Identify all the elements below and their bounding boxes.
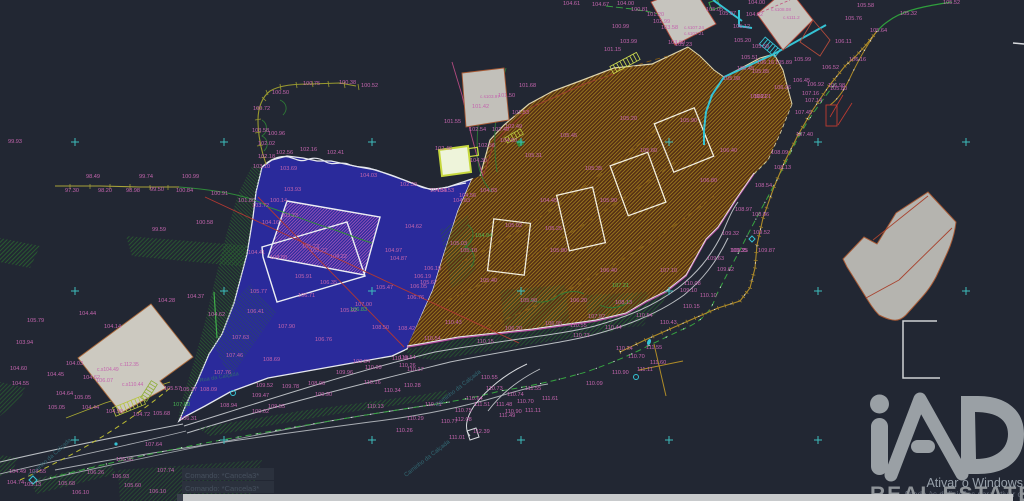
svg-text:105.05: 105.05	[74, 395, 91, 401]
svg-text:104.22: 104.22	[330, 254, 347, 260]
svg-text:106.16: 106.16	[757, 60, 774, 66]
svg-text:104.49: 104.49	[9, 469, 26, 475]
svg-text:105.79: 105.79	[27, 318, 44, 324]
svg-text:108.94: 108.94	[220, 403, 237, 409]
svg-text:111.51: 111.51	[474, 402, 490, 408]
svg-text:107.10: 107.10	[660, 268, 677, 274]
svg-text:107.64: 107.64	[145, 442, 162, 448]
svg-text:106.95: 106.95	[545, 321, 562, 327]
svg-text:105.31: 105.31	[525, 153, 542, 159]
svg-text:105.52: 105.52	[943, 0, 960, 6]
svg-text:104.45: 104.45	[47, 372, 64, 378]
svg-text:104.94: 104.94	[475, 233, 492, 239]
svg-text:112.08: 112.08	[455, 417, 472, 423]
svg-text:104.00: 104.00	[748, 0, 765, 6]
svg-text:105.90: 105.90	[680, 118, 697, 124]
svg-text:99.74: 99.74	[139, 174, 153, 180]
svg-text:108.13: 108.13	[615, 300, 632, 306]
svg-text:105.58: 105.58	[857, 3, 874, 9]
svg-text:110.74: 110.74	[616, 346, 633, 352]
svg-text:110.90: 110.90	[612, 370, 629, 376]
svg-text:97.30: 97.30	[65, 188, 79, 194]
svg-text:111.48: 111.48	[496, 402, 512, 408]
svg-text:110.29: 110.29	[407, 416, 424, 422]
svg-text:c.112.35: c.112.35	[120, 362, 139, 368]
svg-text:106.92: 106.92	[807, 82, 824, 88]
svg-text:105.85: 105.85	[752, 69, 769, 75]
svg-text:c.s107.21: c.s107.21	[684, 31, 704, 36]
svg-text:109.47: 109.47	[252, 393, 269, 399]
svg-text:106.35: 106.35	[320, 280, 337, 286]
svg-text:105.59: 105.59	[752, 44, 769, 50]
svg-text:105.90: 105.90	[520, 298, 537, 304]
svg-text:104.58: 104.58	[106, 409, 123, 415]
svg-text:106.26: 106.26	[87, 470, 104, 476]
svg-text:105.03: 105.03	[450, 241, 467, 247]
svg-text:110.55: 110.55	[570, 323, 587, 329]
svg-text:110.43: 110.43	[660, 320, 677, 326]
svg-text:108.42: 108.42	[398, 326, 415, 332]
svg-text:104.41: 104.41	[248, 250, 265, 256]
svg-text:104.28: 104.28	[158, 298, 175, 304]
svg-text:104.67: 104.67	[592, 2, 609, 8]
svg-text:101.50: 101.50	[498, 93, 515, 99]
svg-text:105.76: 105.76	[845, 16, 862, 22]
svg-text:109.52: 109.52	[753, 230, 770, 236]
svg-text:105.13: 105.13	[24, 482, 41, 488]
svg-text:c.s111.2: c.s111.2	[783, 15, 800, 20]
svg-text:c.s108.08: c.s108.08	[771, 7, 791, 12]
svg-text:108.54: 108.54	[755, 183, 772, 189]
svg-text:104.45: 104.45	[540, 198, 557, 204]
svg-text:104.03: 104.03	[360, 173, 377, 179]
svg-text:106.20: 106.20	[505, 326, 522, 332]
svg-text:105.23: 105.23	[675, 42, 692, 48]
svg-text:106.19: 106.19	[414, 274, 431, 280]
svg-text:110.73: 110.73	[573, 333, 590, 339]
svg-text:106.93: 106.93	[112, 474, 129, 480]
svg-text:103.58: 103.58	[661, 25, 678, 31]
svg-text:110.15: 110.15	[683, 304, 700, 310]
svg-text:108.96: 108.96	[308, 381, 325, 387]
svg-text:106.76: 106.76	[315, 337, 332, 343]
svg-text:100.91: 100.91	[211, 191, 228, 197]
svg-text:107.60: 107.60	[173, 402, 190, 408]
svg-text:110.70: 110.70	[517, 399, 534, 405]
svg-text:107.21: 107.21	[612, 283, 629, 289]
svg-text:108.09: 108.09	[771, 150, 788, 156]
svg-text:105.40: 105.40	[480, 278, 497, 284]
svg-text:104.00: 104.00	[617, 1, 634, 7]
svg-text:109.63: 109.63	[707, 256, 724, 262]
svg-text:110.34: 110.34	[384, 388, 401, 394]
svg-text:101.55: 101.55	[444, 119, 461, 125]
svg-text:100.75: 100.75	[303, 81, 320, 87]
svg-text:98.20: 98.20	[98, 188, 112, 194]
svg-text:107.74: 107.74	[157, 468, 174, 474]
svg-text:103.94: 103.94	[16, 340, 33, 346]
svg-text:110.16: 110.16	[364, 380, 381, 386]
svg-text:109.55: 109.55	[268, 404, 285, 410]
svg-text:107.14: 107.14	[805, 98, 822, 104]
svg-text:111.55: 111.55	[525, 386, 541, 392]
svg-text:111.60: 111.60	[650, 360, 666, 366]
svg-text:109.10: 109.10	[680, 288, 697, 294]
svg-text:110.73: 110.73	[486, 386, 503, 392]
svg-text:105.37: 105.37	[180, 387, 197, 393]
svg-text:107.16: 107.16	[802, 91, 819, 97]
svg-text:100.38: 100.38	[339, 80, 356, 86]
svg-text:106.31: 106.31	[180, 416, 197, 422]
svg-text:c.s104.49: c.s104.49	[97, 367, 119, 373]
svg-text:104.72: 104.72	[133, 412, 150, 418]
svg-text:105.68: 105.68	[153, 411, 170, 417]
svg-text:110.54: 110.54	[636, 313, 653, 319]
svg-text:105.25: 105.25	[545, 226, 562, 232]
svg-text:102.41: 102.41	[327, 150, 344, 156]
svg-text:103.72: 103.72	[252, 203, 269, 209]
svg-text:104.80: 104.80	[270, 255, 287, 261]
svg-text:104.56: 104.56	[459, 193, 476, 199]
svg-text:106.10: 106.10	[72, 490, 89, 496]
svg-text:111.11: 111.11	[637, 367, 653, 373]
svg-text:110.09: 110.09	[586, 381, 603, 387]
svg-text:105.12: 105.12	[733, 24, 750, 30]
svg-text:99.93: 99.93	[8, 139, 22, 145]
svg-text:102.02: 102.02	[258, 141, 275, 147]
svg-text:109.02: 109.02	[252, 409, 269, 415]
svg-text:110.55: 110.55	[481, 375, 498, 381]
svg-text:105.77: 105.77	[250, 289, 267, 295]
svg-text:110.17: 110.17	[407, 367, 424, 373]
svg-text:104.53: 104.53	[437, 188, 454, 194]
svg-text:110.10: 110.10	[700, 293, 717, 299]
svg-text:104.44: 104.44	[82, 405, 99, 411]
svg-text:107.46: 107.46	[226, 353, 243, 359]
svg-text:106.20: 106.20	[570, 298, 587, 304]
svg-text:104.14: 104.14	[104, 324, 121, 330]
svg-text:105.57: 105.57	[164, 386, 181, 392]
svg-text:108.86: 108.86	[752, 212, 769, 218]
svg-text:112.39: 112.39	[473, 429, 490, 435]
svg-text:104.82: 104.82	[746, 12, 763, 18]
svg-text:110.28: 110.28	[404, 383, 421, 389]
svg-text:103.69: 103.69	[280, 166, 297, 172]
svg-text:109.32: 109.32	[722, 231, 739, 237]
svg-text:111.01: 111.01	[449, 435, 465, 441]
svg-text:105.64: 105.64	[870, 28, 887, 34]
svg-text:108.13: 108.13	[774, 165, 791, 171]
svg-text:105.80: 105.80	[550, 248, 567, 254]
svg-text:106.19: 106.19	[424, 266, 441, 272]
svg-text:104.64: 104.64	[56, 391, 73, 397]
svg-text:102.54: 102.54	[469, 127, 486, 133]
svg-text:110.09: 110.09	[365, 365, 382, 371]
svg-text:110.75: 110.75	[455, 408, 472, 414]
svg-text:110.54: 110.54	[399, 355, 416, 361]
svg-text:105.45: 105.45	[560, 133, 577, 139]
svg-text:105.23: 105.23	[302, 244, 319, 250]
svg-text:104.16: 104.16	[262, 220, 279, 226]
svg-text:98.49: 98.49	[86, 174, 100, 180]
svg-text:109.96: 109.96	[336, 370, 353, 376]
svg-text:105.20: 105.20	[734, 38, 751, 44]
svg-text:106.07: 106.07	[96, 378, 113, 384]
svg-text:110.13: 110.13	[367, 404, 384, 410]
svg-text:100.58: 100.58	[196, 220, 213, 226]
svg-text:106.26: 106.26	[774, 85, 791, 91]
svg-text:105.68: 105.68	[58, 481, 75, 487]
svg-text:103.58: 103.58	[252, 128, 269, 134]
svg-text:104.60: 104.60	[10, 366, 27, 372]
svg-text:104.55: 104.55	[12, 381, 29, 387]
svg-text:103.99: 103.99	[620, 39, 637, 45]
svg-text:106.83: 106.83	[350, 307, 367, 313]
svg-text:106.71: 106.71	[298, 293, 315, 299]
svg-text:Comando: *Cancela3*: Comando: *Cancela3*	[185, 484, 259, 493]
svg-text:106.05: 106.05	[410, 284, 427, 290]
svg-text:106.41: 106.41	[247, 309, 264, 315]
svg-text:100.99: 100.99	[182, 174, 199, 180]
svg-text:107.90: 107.90	[278, 324, 295, 330]
svg-text:109.90: 109.90	[315, 392, 332, 398]
svg-text:104.03: 104.03	[66, 361, 83, 367]
svg-text:99.59: 99.59	[152, 227, 166, 233]
svg-text:103.23: 103.23	[281, 213, 298, 219]
svg-text:102.40: 102.40	[492, 127, 509, 133]
svg-text:100.81: 100.81	[631, 7, 648, 13]
svg-text:c.s110.44: c.s110.44	[122, 382, 144, 388]
svg-text:111.61: 111.61	[542, 396, 558, 402]
svg-text:110.54: 110.54	[424, 336, 441, 342]
svg-text:106.76: 106.76	[407, 295, 424, 301]
svg-text:98.98: 98.98	[126, 188, 140, 194]
svg-text:c.s107.24: c.s107.24	[684, 25, 704, 30]
svg-text:102.56: 102.56	[478, 143, 495, 149]
svg-text:106.80: 106.80	[700, 178, 717, 184]
svg-text:104.61: 104.61	[563, 1, 580, 7]
svg-text:105.89: 105.89	[775, 60, 792, 66]
svg-text:107.63: 107.63	[232, 335, 249, 341]
svg-text:105.98: 105.98	[723, 76, 740, 82]
svg-text:102.16: 102.16	[300, 147, 317, 153]
svg-text:105.32: 105.32	[900, 11, 917, 17]
svg-text:107.40: 107.40	[796, 132, 813, 138]
svg-text:108.50: 108.50	[372, 325, 389, 331]
svg-text:109.62: 109.62	[717, 267, 734, 273]
svg-text:106.96: 106.96	[116, 457, 133, 463]
svg-text:100.99: 100.99	[612, 24, 629, 30]
svg-text:101.53: 101.53	[512, 110, 529, 116]
svg-text:100.84: 100.84	[176, 188, 193, 194]
svg-text:105.20: 105.20	[620, 116, 637, 122]
svg-text:104.44: 104.44	[79, 311, 96, 317]
svg-text:105.47: 105.47	[376, 285, 393, 291]
svg-text:105.99: 105.99	[794, 57, 811, 63]
svg-text:102.18: 102.18	[258, 154, 275, 160]
svg-text:Comando: *Cancela3*: Comando: *Cancela3*	[185, 471, 259, 480]
svg-text:108.69: 108.69	[263, 357, 280, 363]
svg-text:105.60: 105.60	[640, 148, 657, 154]
svg-text:101.20: 101.20	[647, 12, 664, 18]
svg-text:107.45: 107.45	[795, 110, 812, 116]
svg-text:105.90: 105.90	[600, 198, 617, 204]
svg-text:106.11: 106.11	[835, 39, 852, 45]
svg-text:105.35: 105.35	[585, 166, 602, 172]
svg-text:106.16: 106.16	[849, 57, 866, 63]
svg-text:102.56: 102.56	[276, 150, 293, 156]
svg-text:110.43: 110.43	[445, 320, 462, 326]
svg-text:106.40: 106.40	[600, 268, 617, 274]
svg-text:104.62: 104.62	[208, 312, 225, 318]
svg-text:100.96: 100.96	[268, 131, 285, 137]
svg-text:106.52: 106.52	[822, 65, 839, 71]
svg-text:99.50: 99.50	[150, 187, 164, 193]
svg-text:Ativar o Windows: Ativar o Windows	[926, 476, 1023, 490]
svg-text:108.97: 108.97	[735, 207, 752, 213]
svg-text:105.51: 105.51	[741, 55, 758, 61]
svg-text:100.50: 100.50	[272, 90, 289, 96]
svg-text:101.15: 101.15	[604, 47, 621, 53]
svg-text:106.40: 106.40	[720, 148, 737, 154]
svg-text:104.97: 104.97	[385, 248, 402, 254]
svg-text:110.26: 110.26	[396, 428, 413, 434]
svg-text:109.52: 109.52	[256, 383, 273, 389]
svg-text:103.10: 103.10	[253, 164, 270, 170]
svg-text:111.49: 111.49	[499, 413, 515, 419]
svg-text:110.08: 110.08	[684, 281, 701, 287]
svg-text:111.11: 111.11	[525, 408, 541, 414]
svg-text:102.46: 102.46	[435, 146, 452, 152]
svg-text:107.92: 107.92	[588, 314, 605, 320]
svg-text:103.93: 103.93	[284, 187, 301, 193]
svg-text:102.39: 102.39	[400, 182, 417, 188]
svg-text:100.14: 100.14	[270, 198, 287, 204]
svg-text:104.62: 104.62	[405, 224, 422, 230]
svg-text:104.83: 104.83	[480, 188, 497, 194]
svg-text:105.45: 105.45	[737, 66, 754, 72]
svg-text:101.42: 101.42	[472, 104, 489, 110]
svg-text:109.87: 109.87	[758, 248, 775, 254]
svg-text:106.10: 106.10	[149, 489, 166, 495]
svg-text:105.91: 105.91	[295, 274, 312, 280]
svg-text:106.21: 106.21	[750, 94, 767, 100]
svg-text:105.02: 105.02	[505, 223, 522, 229]
svg-text:110.44: 110.44	[605, 325, 622, 331]
svg-text:110.15: 110.15	[477, 339, 494, 345]
svg-text:104.87: 104.87	[390, 256, 407, 262]
svg-text:109.78: 109.78	[282, 384, 299, 390]
svg-text:108.09: 108.09	[200, 387, 217, 393]
svg-text:104.30: 104.30	[470, 158, 487, 164]
svg-text:105.10: 105.10	[460, 248, 477, 254]
svg-text:100.52: 100.52	[361, 83, 378, 89]
svg-text:105.60: 105.60	[124, 483, 141, 489]
svg-text:105.07: 105.07	[719, 11, 736, 17]
svg-text:110.70: 110.70	[628, 354, 645, 360]
svg-text:101.68: 101.68	[519, 83, 536, 89]
svg-text:111.55: 111.55	[646, 345, 662, 351]
svg-text:100.72: 100.72	[253, 106, 270, 112]
svg-text:105.05: 105.05	[48, 405, 65, 411]
svg-text:104.80: 104.80	[500, 138, 517, 144]
svg-text:104.74: 104.74	[7, 480, 24, 486]
svg-text:105.80: 105.80	[830, 86, 847, 92]
svg-text:104.37: 104.37	[187, 294, 204, 300]
svg-text:109.25: 109.25	[731, 248, 748, 254]
svg-text:110.74: 110.74	[507, 392, 524, 398]
